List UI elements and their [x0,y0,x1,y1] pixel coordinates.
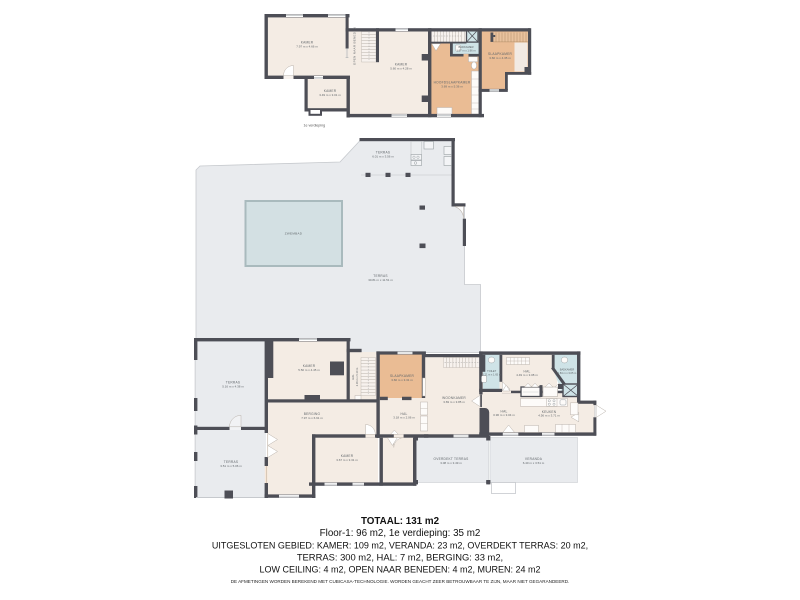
svg-text:1e verdieping: 1e verdieping [304,124,326,128]
svg-text:3.08 m x 3.49 m: 3.08 m x 3.49 m [440,461,462,465]
svg-text:DE AFMETINGEN WORDEN BEREKEND: DE AFMETINGEN WORDEN BEREKEND MET CUBICA… [231,579,570,584]
svg-text:BADKAMER: BADKAMER [560,368,575,372]
svg-text:6.40 m x 3.51 m: 6.40 m x 3.51 m [523,461,545,465]
svg-text:TOILET: TOILET [487,369,496,373]
svg-text:TOTAAL: 131 m2: TOTAAL: 131 m2 [361,516,440,527]
svg-text:7.97 m x 4.66 m: 7.97 m x 4.66 m [296,45,318,49]
svg-text:3.51 m x 5.06 m: 3.51 m x 5.06 m [220,464,242,468]
svg-text:3.60 m x 3.31 m: 3.60 m x 3.31 m [391,378,413,382]
svg-text:30.81 m x 11.51 m: 30.81 m x 11.51 m [368,278,393,282]
svg-text:2.16 m x 5.10 m: 2.16 m x 5.10 m [355,368,359,387]
svg-text:3.18 m x 2.06 m: 3.18 m x 2.06 m [393,416,415,420]
svg-text:5.60 m x 4.28 m: 5.60 m x 4.28 m [390,67,412,71]
svg-text:TERRAS: 300 m2, HAL: 7 m2, BER: TERRAS: 300 m2, HAL: 7 m2, BERGING: 33 m… [297,552,503,563]
svg-text:1.21 m x 1.65 m: 1.21 m x 1.65 m [482,373,501,377]
svg-text:3.67 m x 3.31 m: 3.67 m x 3.31 m [336,458,358,462]
svg-text:3.69 m x 3.85 m: 3.69 m x 3.85 m [443,400,465,404]
svg-text:4.49 m x 3.08 m: 4.49 m x 3.08 m [516,373,538,377]
svg-text:1.84 m x 3.05 m: 1.84 m x 3.05 m [558,371,577,375]
svg-text:5.16 m x 4.38 m: 5.16 m x 4.38 m [222,385,244,389]
svg-text:OPEN NAAR BENEDEN: OPEN NAAR BENEDEN [353,27,357,65]
svg-text:7.97 m x 6.91 m: 7.97 m x 6.91 m [301,416,323,420]
svg-text:HAL: HAL [351,374,355,380]
svg-text:0.96 m x 3.04 m: 0.96 m x 3.04 m [493,413,515,417]
svg-text:BADKAMER: BADKAMER [458,45,473,49]
svg-text:ZWEMBAD: ZWEMBAD [285,232,303,236]
svg-text:UITGESLOTEN GEBIED: KAMER: 109: UITGESLOTEN GEBIED: KAMER: 109 m2, VERAN… [212,541,588,551]
svg-text:4.56 m x 3.71 m: 4.56 m x 3.71 m [538,414,560,418]
svg-text:6.01 m x 3.56 m: 6.01 m x 3.56 m [372,155,394,159]
svg-text:Floor-1: 96 m2, 1e verdieping:: Floor-1: 96 m2, 1e verdieping: 35 m2 [320,528,481,539]
svg-text:LOW CEILING: 4 m2, OPEN NAAR B: LOW CEILING: 4 m2, OPEN NAAR BENEDEN: 4 … [259,565,540,575]
svg-text:3.60 m x 4.35 m: 3.60 m x 4.35 m [489,56,511,60]
svg-text:1.97 m x 1.96 m: 1.97 m x 1.96 m [456,49,476,53]
svg-text:3.49 m x 3.01 m: 3.49 m x 3.01 m [319,93,341,97]
svg-text:3.69 m x 5.36 m: 3.69 m x 5.36 m [441,85,463,89]
svg-text:5.50 m x 4.45 m: 5.50 m x 4.45 m [298,368,320,372]
